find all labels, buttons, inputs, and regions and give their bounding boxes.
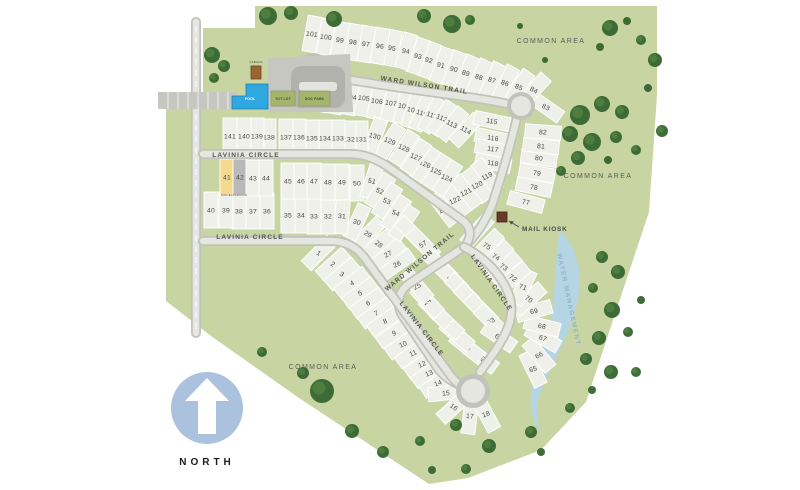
pool-label: POOL xyxy=(245,97,256,101)
tree-icon xyxy=(571,151,585,165)
lot-number: 37 xyxy=(249,208,257,215)
lot-34[interactable]: 34 xyxy=(294,197,308,233)
tree-icon xyxy=(594,96,610,112)
tree-icon xyxy=(218,60,230,72)
tree-icon xyxy=(583,133,601,151)
lot-number: 41 xyxy=(223,174,231,181)
lot-number: 133 xyxy=(332,135,344,142)
lot-number: 101 xyxy=(306,31,319,39)
tree-icon xyxy=(656,125,668,137)
tree-icon xyxy=(542,57,548,63)
lot-number: 44 xyxy=(262,175,270,182)
tree-icon xyxy=(580,353,592,365)
tree-icon xyxy=(461,464,471,474)
lot-number: 40 xyxy=(207,207,215,214)
tree-icon xyxy=(417,9,431,23)
lot-140[interactable]: 140 xyxy=(237,118,251,154)
common-area-label: COMMON AREA xyxy=(517,38,586,45)
lot-number: 45 xyxy=(284,178,292,185)
lot-number: 36 xyxy=(263,208,271,215)
site-plan-map: 1234567891011121314151617181920212223242… xyxy=(0,0,800,490)
dog-park-label: DOG PARK xyxy=(305,97,325,101)
cabana xyxy=(251,66,261,79)
mail-kiosk-icon xyxy=(497,212,507,222)
lot-number: 135 xyxy=(306,135,318,142)
tree-icon xyxy=(611,265,625,279)
tree-icon xyxy=(284,6,298,20)
tree-icon xyxy=(631,367,641,377)
tree-icon xyxy=(525,426,537,438)
tree-icon xyxy=(465,15,475,25)
lot-42-caption: PARKING xyxy=(233,193,248,197)
lot-39[interactable]: 39 xyxy=(219,192,233,228)
lot-33[interactable]: 33 xyxy=(307,198,321,234)
tree-icon xyxy=(648,53,662,67)
lot-number: 17 xyxy=(466,413,475,421)
lot-48[interactable]: 48 xyxy=(321,164,335,200)
lot-42[interactable]: 42 xyxy=(233,159,247,195)
lot-number: 140 xyxy=(238,133,250,140)
lot-number: 48 xyxy=(324,179,332,186)
lot-number: 39 xyxy=(222,207,230,214)
lot-number: 134 xyxy=(319,135,331,142)
lot-number: 95 xyxy=(387,45,396,53)
lot-number: 50 xyxy=(353,180,361,187)
tree-icon xyxy=(631,145,641,155)
tree-icon xyxy=(257,347,267,357)
lot-number: 78 xyxy=(529,184,538,192)
street-label: LAVINIA CIRCLE xyxy=(212,152,279,159)
tree-icon xyxy=(637,296,645,304)
lot-number: 138 xyxy=(263,134,275,141)
lot-31[interactable]: 31 xyxy=(333,197,350,234)
common-area-label: COMMON AREA xyxy=(289,364,358,371)
lot-number: 77 xyxy=(521,199,530,207)
tree-icon xyxy=(615,105,629,119)
tree-icon xyxy=(443,15,461,33)
north-arrow: NORTH xyxy=(171,372,243,468)
lot-number: 100 xyxy=(320,34,333,42)
tree-icon xyxy=(482,439,496,453)
tree-icon xyxy=(588,386,596,394)
lot-82[interactable]: 82 xyxy=(525,124,562,140)
tree-icon xyxy=(310,379,334,403)
tree-icon xyxy=(602,20,618,36)
lot-43[interactable]: 43 xyxy=(246,160,260,196)
tree-icon xyxy=(565,403,575,413)
lot-36[interactable]: 36 xyxy=(260,193,274,229)
parking-lot xyxy=(158,92,237,109)
tree-icon xyxy=(644,84,652,92)
tree-icon xyxy=(537,448,545,456)
tree-icon xyxy=(428,466,436,474)
lot-number: 32 xyxy=(324,213,332,220)
lot-41[interactable]: 41 xyxy=(220,159,234,195)
lot-number: 68 xyxy=(537,323,546,331)
lot-number: 31 xyxy=(338,213,346,220)
lot-number: 98 xyxy=(349,39,358,47)
lot-number: 69 xyxy=(530,308,539,316)
lot-45[interactable]: 45 xyxy=(281,163,295,199)
tree-icon xyxy=(377,446,389,458)
tree-icon xyxy=(636,35,646,45)
lot-number: 34 xyxy=(297,212,305,219)
mail-kiosk-label: MAIL KIOSK xyxy=(522,226,568,233)
lot-44[interactable]: 44 xyxy=(259,160,273,196)
lot-49[interactable]: 49 xyxy=(335,164,349,200)
tree-icon xyxy=(204,47,220,63)
tree-icon xyxy=(604,365,618,379)
tree-icon xyxy=(623,327,633,337)
lot-number: 35 xyxy=(284,212,292,219)
street-label: LAVINIA CIRCLE xyxy=(216,234,283,241)
tree-icon xyxy=(588,283,598,293)
lot-number: 139 xyxy=(251,133,263,140)
tot-lot-label: TOT LOT xyxy=(275,97,292,101)
lot-number: 81 xyxy=(537,143,545,151)
lot-number: 49 xyxy=(338,179,346,186)
lot-38[interactable]: 38 xyxy=(232,193,246,229)
tree-icon xyxy=(517,23,523,29)
lot-32[interactable]: 32 xyxy=(321,198,335,234)
lot-number: 38 xyxy=(235,208,243,215)
tree-icon xyxy=(623,17,631,25)
tree-icon xyxy=(345,424,359,438)
tree-icon xyxy=(562,126,578,142)
tree-icon xyxy=(596,43,604,51)
north-label: NORTH xyxy=(179,457,235,468)
lot-number: 42 xyxy=(236,174,244,181)
lot-46[interactable]: 46 xyxy=(294,163,308,199)
lot-number: 99 xyxy=(336,37,345,45)
cul-de-sac-south xyxy=(456,374,490,408)
lot-number: 46 xyxy=(297,178,305,185)
lot-number: 136 xyxy=(293,134,305,141)
lot-number: 105 xyxy=(358,95,371,103)
lot-number: 79 xyxy=(533,170,542,178)
lot-37[interactable]: 37 xyxy=(246,193,260,229)
lot-number: 43 xyxy=(249,175,257,182)
lot-number: 96 xyxy=(376,43,385,51)
lot-47[interactable]: 47 xyxy=(307,163,321,199)
lot-number: 141 xyxy=(224,133,236,140)
site-plan-page: 1234567891011121314151617181920212223242… xyxy=(0,0,800,490)
lot-number: 47 xyxy=(310,178,318,185)
common-area-label: COMMON AREA xyxy=(564,173,633,180)
tree-icon xyxy=(326,11,342,27)
tree-icon xyxy=(604,302,620,318)
lot-number: 131 xyxy=(355,136,367,143)
lot-number: 33 xyxy=(310,213,318,220)
lot-number: 80 xyxy=(535,155,544,163)
lot-35[interactable]: 35 xyxy=(281,197,295,233)
tree-icon xyxy=(259,7,277,25)
lot-41-caption: MODEL xyxy=(221,193,233,197)
tree-icon xyxy=(596,251,608,263)
tree-icon xyxy=(209,73,219,83)
lot-number: 137 xyxy=(280,134,292,141)
tree-icon xyxy=(450,419,462,431)
tree-icon xyxy=(570,105,590,125)
lot-141[interactable]: 141 xyxy=(223,118,237,154)
cabana-label: CABANA xyxy=(249,60,263,64)
lot-number: 15 xyxy=(442,390,450,398)
cul-de-sac-east xyxy=(507,92,535,120)
tree-icon xyxy=(604,156,612,164)
tree-icon xyxy=(415,436,425,446)
lot-number: 82 xyxy=(539,129,547,136)
tree-icon xyxy=(592,331,606,345)
lot-139[interactable]: 139 xyxy=(250,118,264,154)
clubhouse-roof-detail xyxy=(299,82,337,91)
lot-number: 97 xyxy=(362,41,371,49)
lot-40[interactable]: 40 xyxy=(204,192,218,228)
tree-icon xyxy=(610,131,622,143)
